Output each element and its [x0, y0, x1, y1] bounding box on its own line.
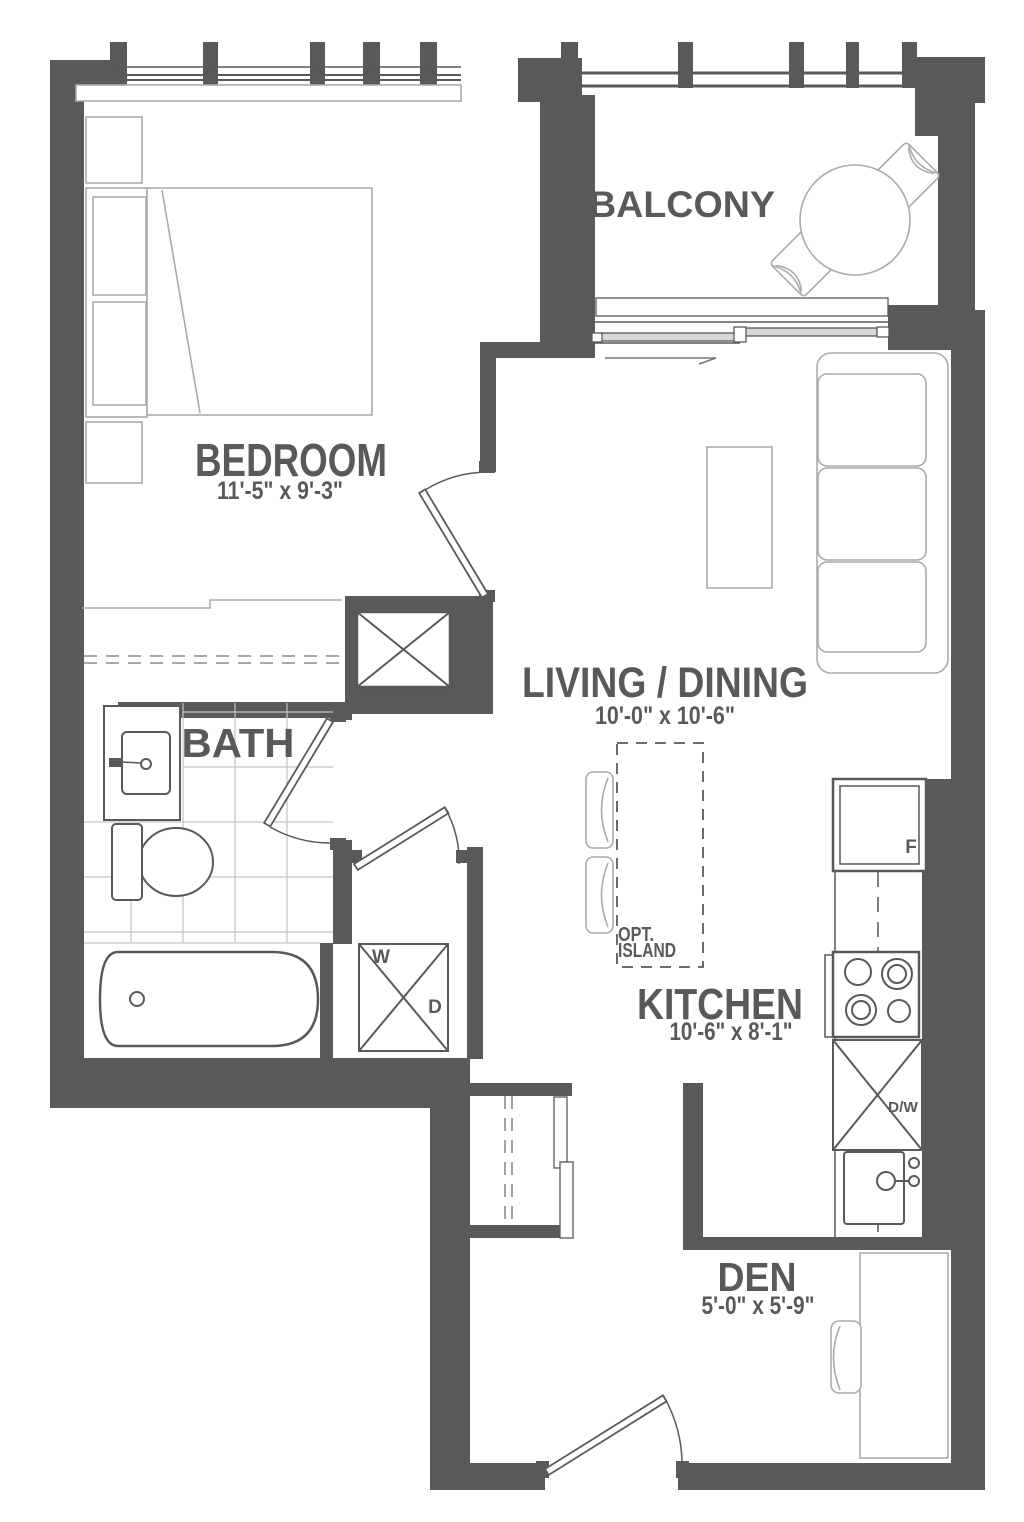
kitchen-sink [844, 1152, 919, 1224]
room-dims-bedroom: 11'-5" x 9'-3" [217, 477, 343, 505]
bathtub [100, 952, 318, 1046]
pillow-2 [93, 302, 146, 405]
entry-door [545, 1395, 682, 1475]
shaft [357, 612, 450, 687]
room-label-living-dining: LIVING / DINING [522, 659, 808, 707]
room-label-bath: BATH [182, 720, 295, 766]
entry [505, 1096, 682, 1475]
toilet [112, 824, 213, 900]
desk [860, 1253, 948, 1458]
slide-direction-arrow [605, 358, 716, 364]
floor-plan: BALCONY BEDROOM 11'-5" x 9'-3" LIVING / … [0, 0, 1024, 1522]
label-fridge: F [905, 837, 917, 858]
island-chair-2 [586, 857, 613, 933]
label-dishwasher: D/W [888, 1099, 919, 1116]
floor-plan-page: BALCONY BEDROOM 11'-5" x 9'-3" LIVING / … [0, 0, 1024, 1522]
room-dims-kitchen: 10'-6" x 8'-1" [670, 1018, 793, 1046]
bedroom-furniture [86, 117, 372, 483]
coffee-table [707, 447, 772, 588]
sofa-cushion-2 [818, 468, 926, 560]
living-room-furniture [707, 353, 948, 673]
dishwasher [833, 1040, 922, 1150]
cooktop [825, 952, 919, 1037]
room-dims-den: 5'-0" x 5'-9" [702, 1292, 815, 1320]
pillow-1 [93, 197, 146, 295]
desk-chair [831, 1321, 861, 1393]
den-furniture [831, 1253, 948, 1458]
balcony-railing [582, 73, 915, 86]
balcony [770, 142, 941, 298]
label-washer: W [372, 947, 390, 968]
label-opt-island-line2: ISLAND [618, 940, 676, 962]
room-dims-living-dining: 10'-0" x 10'-6" [595, 702, 735, 730]
room-label-balcony: BALCONY [589, 184, 775, 225]
entry-closet [505, 1096, 573, 1238]
bedroom-window [76, 67, 461, 101]
laundry-door [354, 807, 459, 870]
sofa-cushion-1 [818, 374, 926, 466]
balcony-table [800, 165, 910, 275]
bath-vanity [104, 706, 180, 820]
bedroom-closet [82, 600, 343, 663]
island-chair-1 [586, 772, 613, 848]
label-dryer: D [428, 997, 442, 1018]
laundry-closet [354, 807, 459, 1051]
nightstand-top [86, 117, 142, 183]
bedroom-door [419, 472, 488, 598]
nightstand-bottom [86, 422, 142, 483]
sofa-cushion-3 [818, 562, 926, 652]
